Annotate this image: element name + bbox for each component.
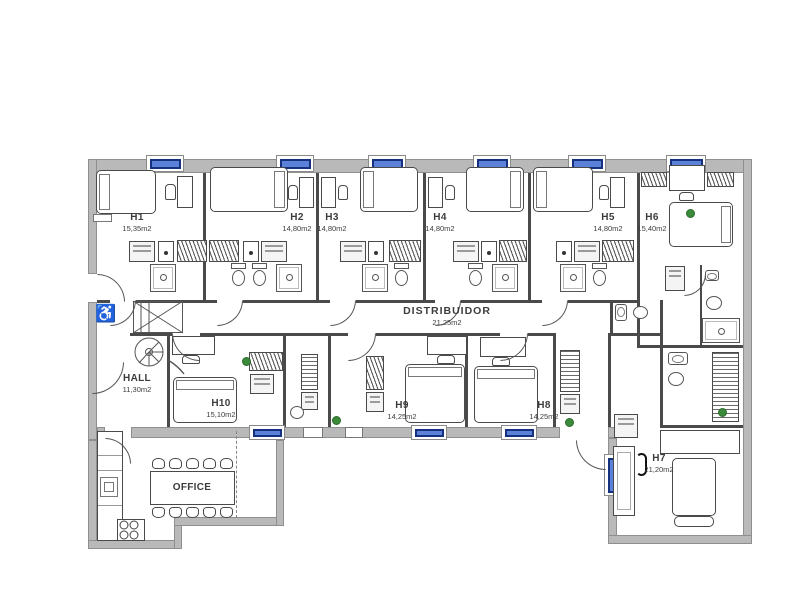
floor-plan: ♿ (0, 0, 800, 600)
room-label-h2: H214,80m2 (282, 212, 311, 233)
room-label-office: OFFICE (173, 482, 211, 493)
room-label-h9: H914,25m2 (387, 400, 416, 421)
room-label-h6: H615,40m2 (637, 212, 666, 233)
room-label-h5: H514,80m2 (593, 212, 622, 233)
room-label-h10: H1015,10m2 (206, 398, 235, 419)
room-label-h4: H414,80m2 (425, 212, 454, 233)
room-label-distribuidor: DISTRIBUIDOR21,25m2 (403, 305, 491, 327)
room-label-h1: H115,35m2 (122, 212, 151, 233)
room-label-h7: H721,20m2 (644, 453, 673, 474)
room-label-hall: HALL11,30m2 (123, 373, 152, 394)
room-label-h8: H814,25m2 (529, 400, 558, 421)
plan-linework (0, 0, 800, 600)
room-label-h3: H314,80m2 (317, 212, 346, 233)
